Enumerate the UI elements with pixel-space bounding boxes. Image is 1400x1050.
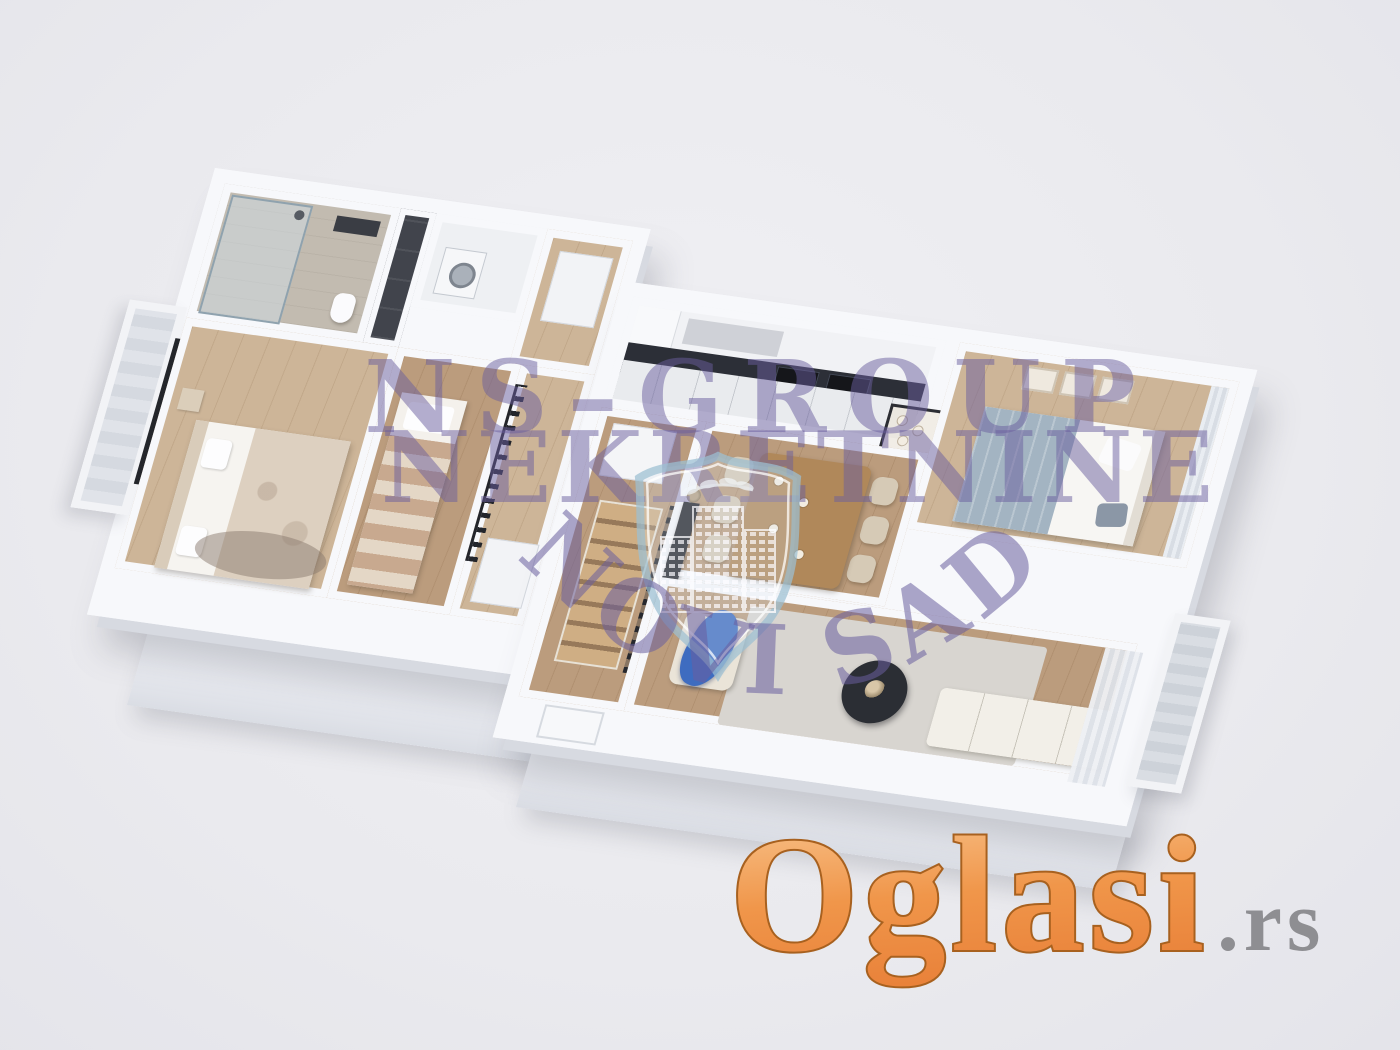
bed	[952, 407, 1165, 547]
picture-frame	[1096, 377, 1134, 405]
plate-icon	[798, 498, 809, 508]
blanket	[952, 407, 1080, 535]
table-decor-icon	[862, 679, 887, 701]
brand-tld: .rs	[1217, 873, 1325, 969]
plate-icon	[768, 524, 779, 534]
closet	[599, 423, 677, 484]
plate-icon	[773, 476, 784, 486]
room-living	[624, 577, 1138, 778]
picture-frame	[1021, 366, 1059, 394]
picture-frame	[1059, 371, 1097, 399]
brand-name: Oglasi	[730, 803, 1209, 987]
washing-machine	[432, 247, 487, 299]
dining-chair	[722, 455, 756, 486]
pillow	[402, 401, 455, 435]
floorplan-3d	[48, 168, 1265, 898]
dining-chair	[867, 476, 901, 507]
pillow	[199, 438, 233, 471]
dish-icon	[897, 436, 908, 446]
pillow	[1095, 503, 1129, 527]
dining-chair	[700, 533, 734, 564]
dining-chair	[858, 515, 892, 546]
pillow	[1097, 435, 1143, 472]
shower	[198, 195, 313, 325]
dining-chair	[845, 553, 879, 584]
room-dining	[663, 422, 929, 607]
dish-icon	[897, 416, 908, 426]
window-curtain	[1163, 386, 1230, 559]
door	[540, 251, 614, 328]
balcony-right	[1126, 613, 1231, 794]
bathroom-vanity	[333, 215, 381, 237]
shower-head-icon	[293, 210, 306, 221]
listing-image: NS–GROUP NEKRETNINE NOVI SAD	[0, 0, 1400, 1050]
svg-text:Oglasi.rs: Oglasi.rs	[730, 803, 1325, 987]
dish-icon	[912, 426, 923, 436]
nightstand	[177, 388, 205, 412]
room-bedroom	[907, 342, 1240, 568]
plate-icon	[793, 550, 804, 560]
toilet	[328, 292, 358, 324]
right-wing	[493, 281, 1258, 826]
oglasi-logo: Oglasi.rs	[690, 815, 1390, 1040]
dining-chair	[709, 494, 743, 525]
entry-door	[536, 704, 605, 745]
washer-door-icon	[446, 261, 479, 290]
